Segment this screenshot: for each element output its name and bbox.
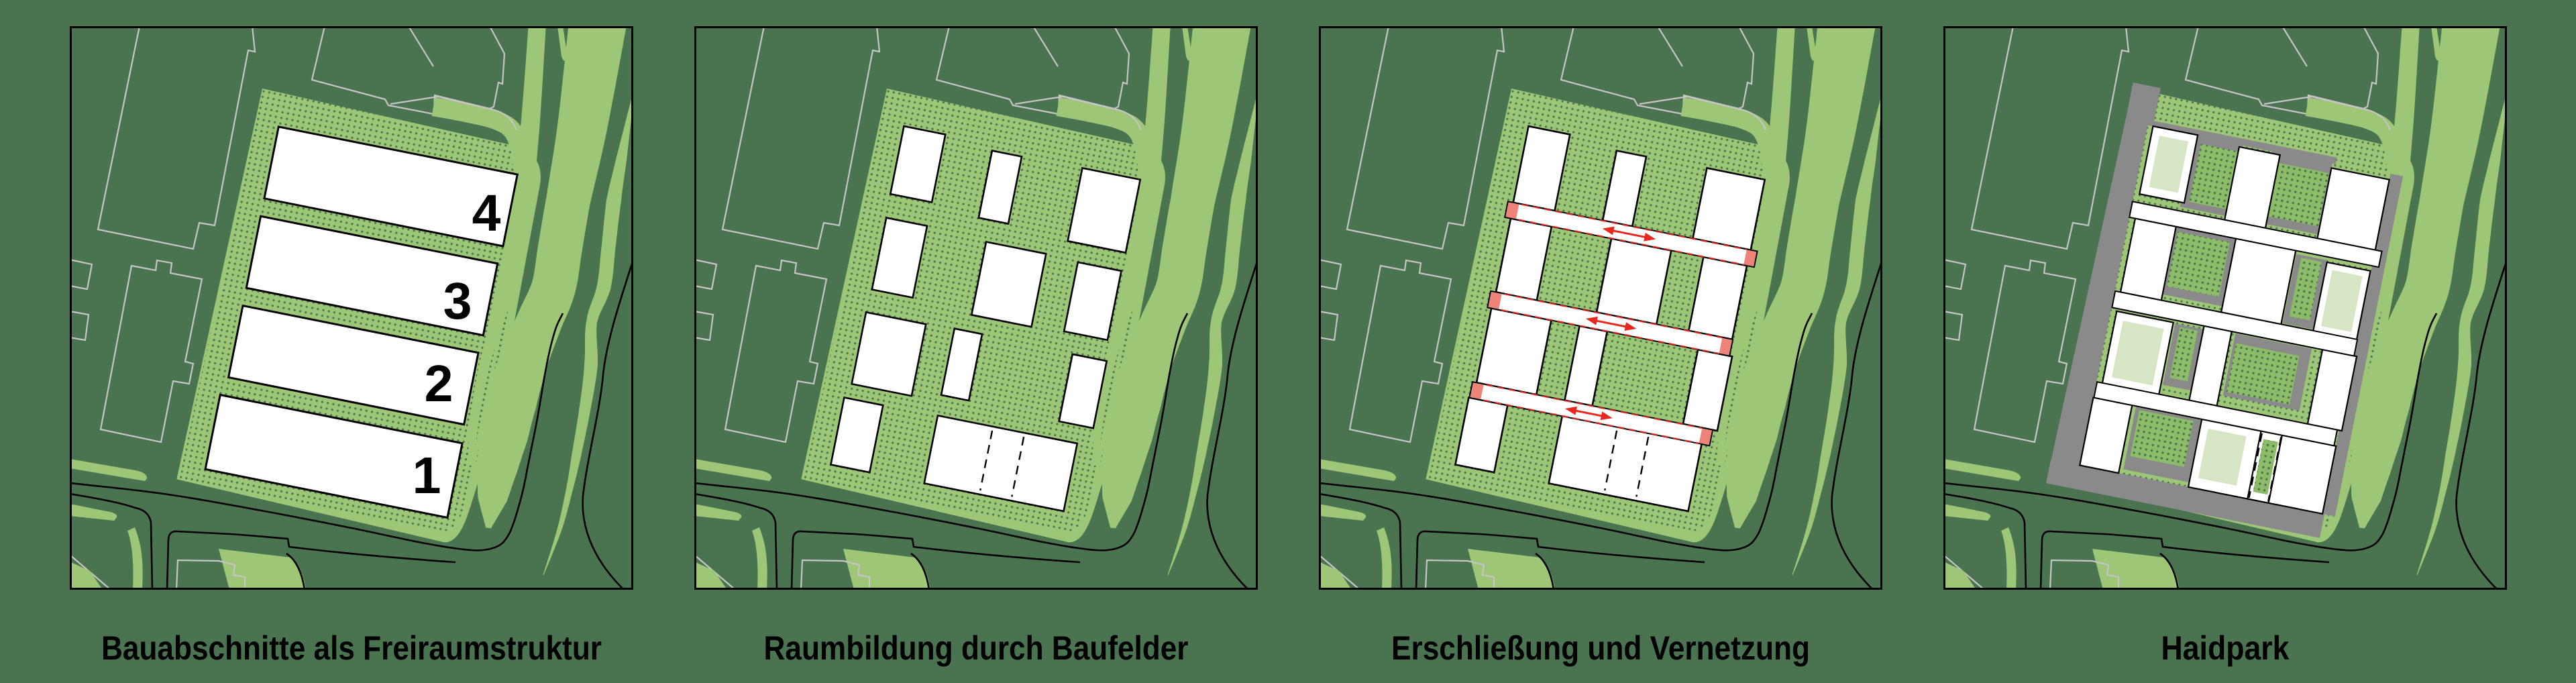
svg-text:Erschließung und Vernetzung: Erschließung und Vernetzung bbox=[1391, 629, 1810, 667]
svg-text:Raumbildung durch Baufelder: Raumbildung durch Baufelder bbox=[764, 629, 1189, 667]
svg-text:Haidpark: Haidpark bbox=[2161, 629, 2290, 667]
svg-text:Bauabschnitte als Freiraumstru: Bauabschnitte als Freiraumstruktur bbox=[101, 629, 602, 667]
svg-text:4: 4 bbox=[472, 185, 501, 242]
svg-text:2: 2 bbox=[425, 355, 453, 413]
svg-text:3: 3 bbox=[443, 272, 472, 330]
svg-text:1: 1 bbox=[413, 447, 441, 505]
